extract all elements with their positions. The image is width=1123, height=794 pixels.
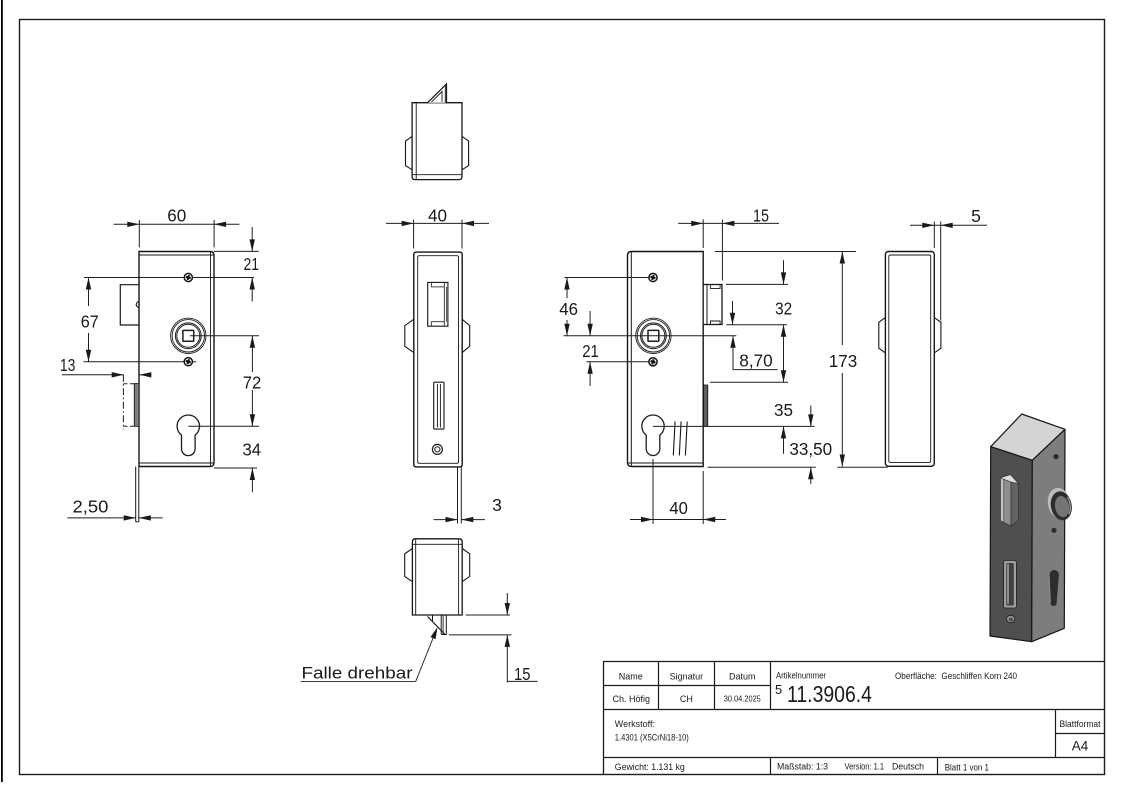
svg-text:Name: Name [619, 672, 643, 682]
svg-text:40: 40 [669, 498, 688, 518]
svg-text:33,50: 33,50 [789, 439, 832, 459]
svg-text:40: 40 [428, 206, 447, 226]
svg-text:Deutsch: Deutsch [892, 762, 924, 772]
svg-text:15: 15 [753, 206, 769, 226]
svg-text:5: 5 [971, 206, 981, 226]
svg-text:173: 173 [829, 351, 858, 371]
svg-text:Artikelnummer: Artikelnummer [776, 670, 826, 680]
svg-text:Oberfläche: Geschliffen Korn: Oberfläche: Geschliffen Korn 240 [895, 671, 1017, 681]
svg-text:A4: A4 [1072, 739, 1089, 754]
svg-text:8,70: 8,70 [739, 350, 773, 370]
svg-text:2,50: 2,50 [73, 497, 109, 517]
svg-text:30.04.2025: 30.04.2025 [724, 695, 761, 704]
svg-text:35: 35 [774, 400, 793, 420]
svg-text:Werkstoff:: Werkstoff: [615, 719, 655, 729]
svg-text:67: 67 [81, 312, 99, 332]
svg-text:Version: 1.1: Version: 1.1 [845, 762, 885, 772]
svg-text:11.3906.4: 11.3906.4 [787, 681, 872, 707]
svg-text:Ch. Höfig: Ch. Höfig [613, 694, 651, 704]
svg-text:3: 3 [492, 495, 502, 515]
svg-text:21: 21 [582, 341, 599, 361]
svg-text:32: 32 [775, 299, 792, 319]
svg-text:34: 34 [243, 439, 262, 459]
svg-text:46: 46 [559, 299, 578, 319]
svg-text:Gewicht: 1.131 kg: Gewicht: 1.131 kg [615, 762, 685, 772]
svg-text:Blatt 1 von 1: Blatt 1 von 1 [945, 763, 989, 773]
svg-text:15: 15 [514, 664, 531, 684]
svg-text:60: 60 [167, 206, 186, 226]
svg-text:CH: CH [680, 694, 693, 704]
svg-text:13: 13 [60, 355, 76, 375]
svg-text:Falle drehbar: Falle drehbar [302, 665, 414, 683]
svg-text:Maßstab: 1:3: Maßstab: 1:3 [777, 762, 828, 772]
svg-text:Blattformat: Blattformat [1060, 719, 1101, 729]
svg-text:Signatur: Signatur [670, 672, 704, 682]
svg-text:72: 72 [243, 373, 262, 393]
svg-text:21: 21 [244, 254, 260, 274]
svg-text:5: 5 [775, 682, 782, 697]
svg-text:Datum: Datum [729, 672, 756, 682]
svg-text:1.4301 (X5CrNi18-10): 1.4301 (X5CrNi18-10) [615, 733, 689, 743]
